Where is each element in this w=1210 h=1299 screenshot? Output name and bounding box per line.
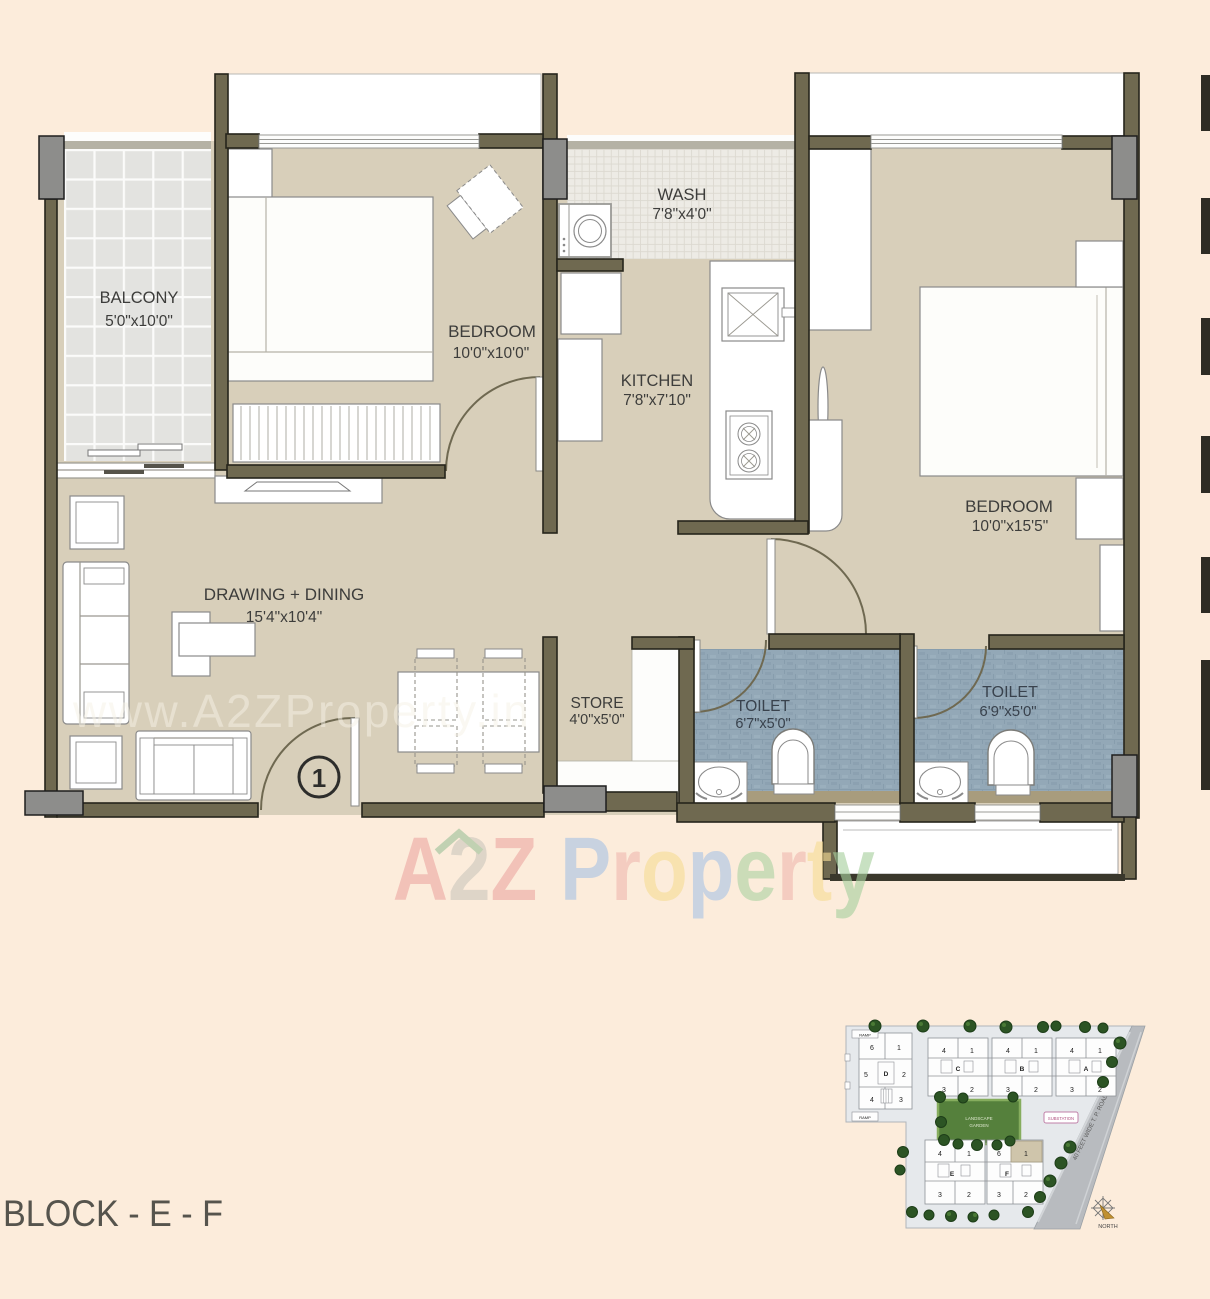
svg-text:Property: Property xyxy=(560,818,875,919)
svg-text:2: 2 xyxy=(1034,1087,1038,1094)
svg-text:2: 2 xyxy=(1024,1192,1028,1199)
svg-text:3: 3 xyxy=(938,1192,942,1199)
svg-text:10'0"x10'0": 10'0"x10'0" xyxy=(453,345,529,362)
svg-text:A2Z: A2Z xyxy=(393,818,538,919)
svg-text:WASH: WASH xyxy=(658,186,707,204)
svg-text:2: 2 xyxy=(970,1087,974,1094)
svg-text:4'0"x5'0": 4'0"x5'0" xyxy=(569,712,624,728)
svg-text:BEDROOM: BEDROOM xyxy=(965,497,1053,516)
svg-text:RAMP: RAMP xyxy=(859,1115,871,1120)
svg-text:LANDSCAPE: LANDSCAPE xyxy=(965,1116,992,1121)
svg-text:1: 1 xyxy=(970,1048,974,1055)
svg-text:BEDROOM: BEDROOM xyxy=(448,322,536,341)
svg-text:4: 4 xyxy=(870,1097,874,1104)
svg-text:1: 1 xyxy=(1034,1048,1038,1055)
svg-text:3: 3 xyxy=(997,1192,1001,1199)
svg-text:D: D xyxy=(884,1071,889,1078)
svg-text:TOILET: TOILET xyxy=(736,698,791,715)
svg-text:6'9"x5'0": 6'9"x5'0" xyxy=(979,703,1036,720)
svg-text:BALCONY: BALCONY xyxy=(100,289,179,307)
svg-text:1: 1 xyxy=(897,1045,901,1052)
svg-text:www.A2ZProperty.in: www.A2ZProperty.in xyxy=(72,685,531,737)
svg-text:SUBSTATION: SUBSTATION xyxy=(1048,1116,1074,1121)
svg-text:DRAWING + DINING: DRAWING + DINING xyxy=(204,585,364,604)
svg-text:KITCHEN: KITCHEN xyxy=(621,372,693,390)
svg-text:2: 2 xyxy=(1098,1087,1102,1094)
svg-text:1: 1 xyxy=(1024,1151,1028,1158)
svg-text:1: 1 xyxy=(312,763,326,793)
svg-text:F: F xyxy=(1005,1171,1009,1178)
svg-text:6: 6 xyxy=(997,1151,1001,1158)
svg-text:RAMP: RAMP xyxy=(859,1033,871,1038)
svg-text:2: 2 xyxy=(902,1072,906,1079)
svg-text:6'7"x5'0": 6'7"x5'0" xyxy=(735,716,790,732)
svg-text:4: 4 xyxy=(1070,1048,1074,1055)
svg-text:STORE: STORE xyxy=(570,695,623,712)
svg-text:3: 3 xyxy=(899,1097,903,1104)
svg-text:C: C xyxy=(956,1066,961,1073)
svg-text:4: 4 xyxy=(942,1048,946,1055)
svg-text:5: 5 xyxy=(864,1072,868,1079)
svg-text:B: B xyxy=(1020,1066,1025,1073)
svg-text:2: 2 xyxy=(967,1192,971,1199)
svg-text:A: A xyxy=(1084,1066,1089,1073)
svg-text:1: 1 xyxy=(967,1151,971,1158)
svg-text:7'8"x4'0": 7'8"x4'0" xyxy=(652,206,711,223)
svg-text:4: 4 xyxy=(938,1151,942,1158)
svg-text:4: 4 xyxy=(1006,1048,1010,1055)
svg-text:5'0"x10'0": 5'0"x10'0" xyxy=(105,313,173,330)
svg-text:BLOCK - E - F: BLOCK - E - F xyxy=(3,1193,223,1234)
svg-text:6: 6 xyxy=(870,1045,874,1052)
svg-text:10'0"x15'5": 10'0"x15'5" xyxy=(972,518,1048,535)
svg-text:NORTH: NORTH xyxy=(1098,1224,1117,1230)
svg-text:E: E xyxy=(950,1171,955,1178)
svg-text:TOILET: TOILET xyxy=(982,684,1038,701)
svg-text:GARDEN: GARDEN xyxy=(969,1123,988,1128)
svg-text:1: 1 xyxy=(1098,1048,1102,1055)
svg-text:7'8"x7'10": 7'8"x7'10" xyxy=(623,392,691,409)
svg-text:15'4"x10'4": 15'4"x10'4" xyxy=(246,609,322,626)
svg-text:3: 3 xyxy=(1070,1087,1074,1094)
